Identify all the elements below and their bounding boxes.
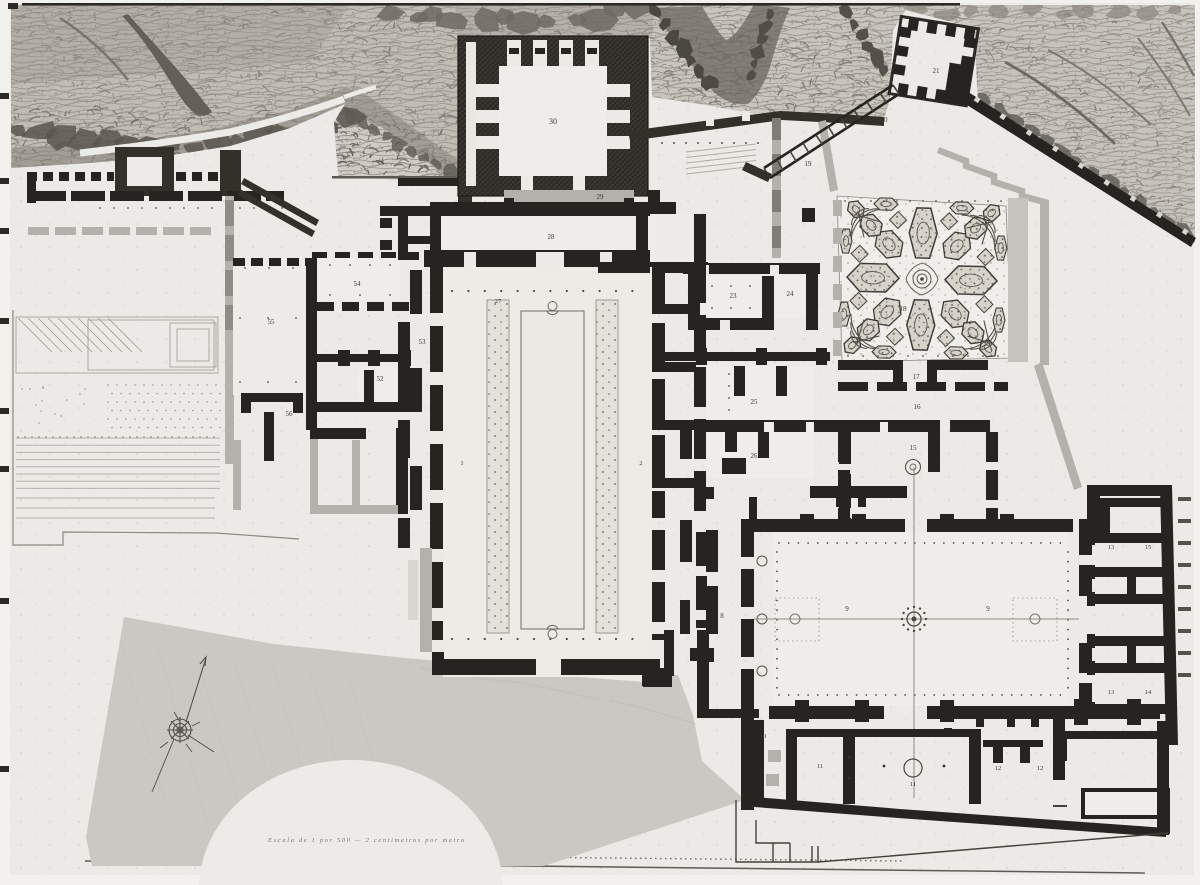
svg-text:18: 18 bbox=[900, 305, 908, 313]
svg-text:14: 14 bbox=[1145, 689, 1152, 696]
svg-text:13: 13 bbox=[1108, 544, 1115, 551]
svg-text:19: 19 bbox=[805, 160, 813, 168]
svg-text:27: 27 bbox=[495, 298, 502, 305]
svg-text:16: 16 bbox=[914, 403, 922, 411]
svg-text:9: 9 bbox=[986, 605, 990, 613]
svg-text:12: 12 bbox=[1037, 765, 1044, 772]
svg-text:12: 12 bbox=[995, 765, 1002, 772]
svg-text:29: 29 bbox=[597, 193, 605, 201]
svg-text:53: 53 bbox=[419, 338, 427, 346]
svg-text:23: 23 bbox=[730, 292, 738, 300]
svg-text:11: 11 bbox=[910, 781, 916, 788]
svg-text:24: 24 bbox=[787, 290, 795, 298]
svg-text:8: 8 bbox=[720, 612, 724, 620]
svg-text:15: 15 bbox=[910, 444, 918, 452]
svg-text:55: 55 bbox=[268, 318, 276, 326]
svg-text:15: 15 bbox=[1145, 544, 1152, 551]
svg-text:Escala de 1 por 500 — 2 centim: Escala de 1 por 500 — 2 centimetros por … bbox=[267, 837, 465, 844]
svg-text:11: 11 bbox=[817, 763, 823, 770]
svg-text:52: 52 bbox=[377, 375, 385, 383]
svg-text:30: 30 bbox=[549, 117, 557, 126]
svg-text:20: 20 bbox=[881, 116, 889, 124]
svg-text:54: 54 bbox=[354, 280, 362, 288]
svg-text:56: 56 bbox=[286, 410, 294, 418]
svg-text:28: 28 bbox=[548, 233, 556, 241]
svg-text:2: 2 bbox=[639, 460, 642, 467]
svg-text:21: 21 bbox=[933, 67, 941, 75]
svg-text:17: 17 bbox=[913, 373, 921, 381]
svg-text:13: 13 bbox=[1108, 689, 1115, 696]
svg-text:1: 1 bbox=[460, 460, 463, 467]
svg-text:26: 26 bbox=[751, 452, 759, 460]
svg-text:9: 9 bbox=[845, 605, 849, 613]
svg-text:25: 25 bbox=[751, 398, 759, 406]
svg-text:10: 10 bbox=[760, 733, 767, 740]
